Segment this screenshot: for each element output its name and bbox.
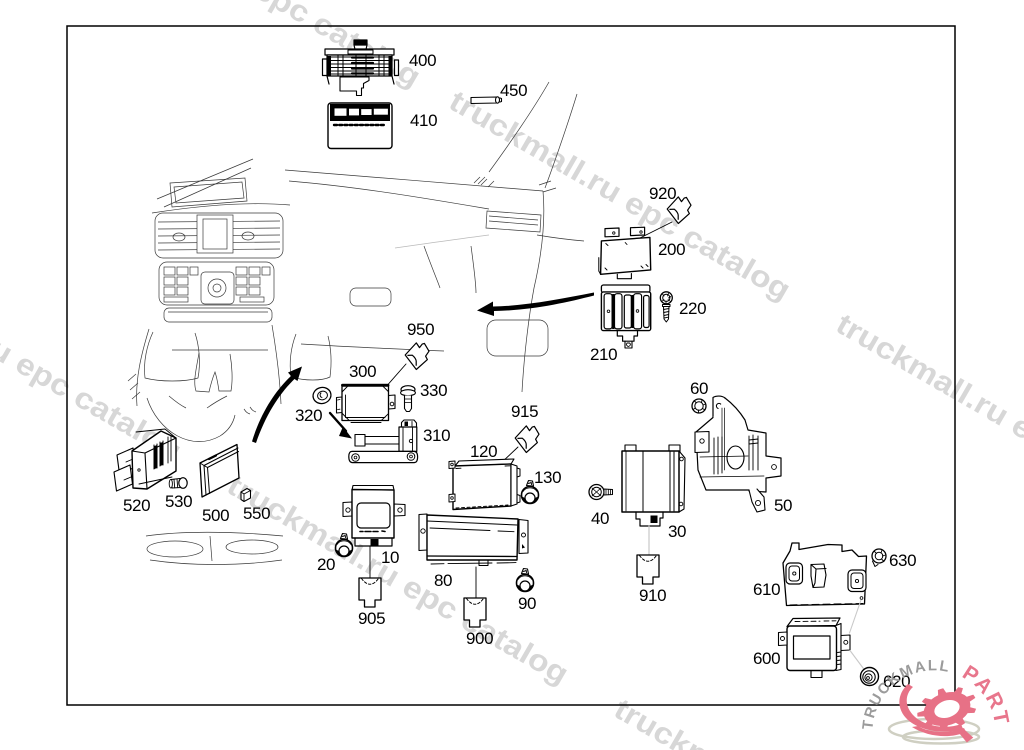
- svg-text:950: 950: [407, 320, 434, 339]
- svg-text:320: 320: [295, 406, 322, 425]
- svg-text:130: 130: [534, 468, 561, 487]
- svg-text:520: 520: [123, 496, 150, 515]
- svg-text:330: 330: [420, 381, 447, 400]
- svg-text:10: 10: [381, 548, 399, 567]
- svg-text:220: 220: [679, 299, 706, 318]
- svg-text:30: 30: [668, 522, 686, 541]
- svg-text:450: 450: [500, 81, 527, 100]
- svg-text:90: 90: [518, 594, 536, 613]
- svg-text:410: 410: [410, 111, 437, 130]
- svg-text:630: 630: [889, 551, 916, 570]
- svg-text:610: 610: [753, 580, 780, 599]
- svg-text:50: 50: [774, 496, 792, 515]
- svg-text:40: 40: [591, 509, 609, 528]
- svg-text:900: 900: [466, 629, 493, 648]
- svg-text:915: 915: [511, 402, 538, 421]
- svg-text:530: 530: [165, 492, 192, 511]
- svg-text:300: 300: [349, 362, 376, 381]
- svg-text:910: 910: [639, 586, 666, 605]
- svg-text:120: 120: [470, 442, 497, 461]
- svg-text:210: 210: [590, 345, 617, 364]
- svg-text:80: 80: [434, 571, 452, 590]
- svg-text:400: 400: [409, 51, 436, 70]
- svg-text:905: 905: [358, 609, 385, 628]
- svg-text:600: 600: [753, 649, 780, 668]
- svg-text:200: 200: [658, 240, 685, 259]
- svg-text:550: 550: [243, 504, 270, 523]
- svg-text:500: 500: [202, 506, 229, 525]
- svg-text:920: 920: [649, 184, 676, 203]
- svg-text:20: 20: [317, 555, 335, 574]
- svg-text:60: 60: [690, 379, 708, 398]
- svg-text:310: 310: [423, 426, 450, 445]
